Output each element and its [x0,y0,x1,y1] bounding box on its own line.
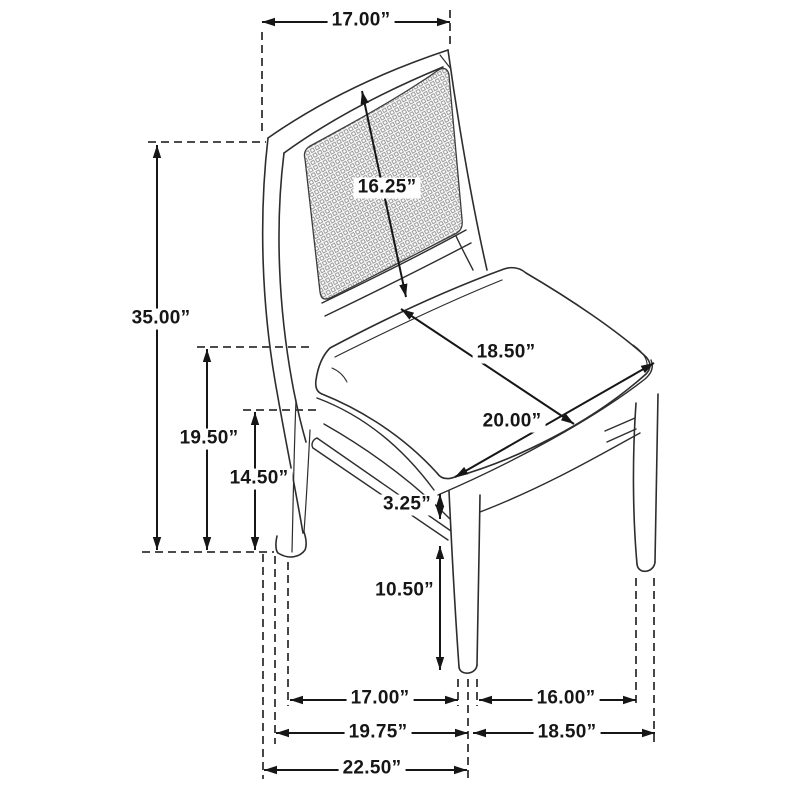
back-right-post-inner [456,236,473,270]
label-apron-thickness: 3.25” [379,495,435,516]
label-base-depth-mid: 18.50” [534,723,601,744]
back-left-post-inner [279,153,306,442]
label-floor-to-seat-top: 19.50” [176,429,243,450]
right-stretcher-top [605,418,635,431]
front-left-leg-right-edge [477,495,480,665]
right-stretcher-bottom [607,429,636,442]
label-seat-depth: 18.50” [473,343,540,364]
front-left-leg-left-edge [449,491,459,667]
label-back-panel-diagonal: 16.25” [354,178,421,199]
label-overall-width: 22.50” [339,759,406,780]
back-left-foot [276,532,306,557]
label-base-width-mid: 19.75” [345,723,412,744]
chair-dimension-diagram: 17.00” 35.00” 16.25” 19.50” 14.50” 18.50… [0,0,800,800]
chair-line-drawing [0,0,800,800]
seat-cushion-top [316,268,650,479]
label-front-leg-height: 10.50” [371,581,438,602]
front-left-foot [459,665,477,673]
label-back-top-width: 17.00” [328,11,395,32]
label-overall-height: 35.00” [128,309,195,330]
front-right-foot [637,562,655,571]
label-side-leg-spacing: 16.00” [533,689,600,710]
label-front-leg-spacing: 17.00” [347,689,414,710]
label-floor-to-stretcher: 14.50” [226,469,293,490]
back-left-leg-front-line [304,430,310,532]
left-stretcher-cap [312,438,317,448]
front-right-leg-right-edge [655,394,658,562]
label-seat-width: 20.00” [479,412,546,433]
front-right-leg-left-edge [633,403,637,564]
